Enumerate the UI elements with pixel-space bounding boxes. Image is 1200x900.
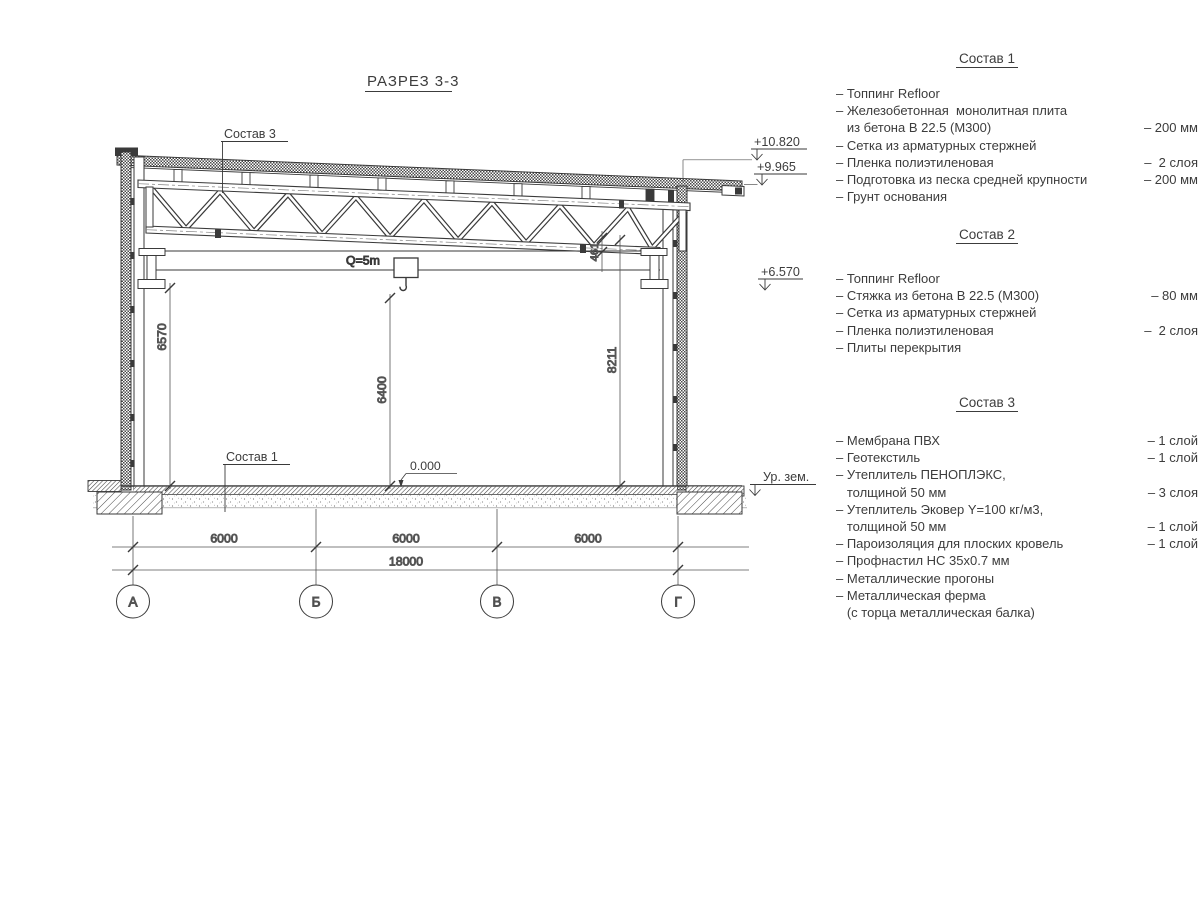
axis-label-g: Г [674, 595, 682, 610]
left-wall [121, 152, 144, 490]
zero-level-mark: 0.000 [399, 459, 458, 488]
elevation-roof-low: +9.965 [757, 160, 796, 174]
material-line: – Стяжка из бетона В 22.5 (М300)– 80 мм [836, 287, 1198, 304]
bottom-dimensions: 6000 6000 6000 18000 А Б В Г [112, 509, 749, 618]
axis-label-a: А [128, 595, 137, 610]
dim-chord-offset: 461 [589, 243, 601, 262]
elevation-crane-rail: +6.570 [761, 265, 800, 279]
material-line: толщиной 50 мм– 1 слой [836, 518, 1198, 535]
material-line: – Железобетонная монолитная плита [836, 102, 1198, 119]
dim-left-height: 6570 [155, 323, 169, 351]
span-dim-1: 6000 [210, 532, 238, 546]
dim-hook-height: 6400 [375, 376, 389, 404]
material-line: – Металлические прогоны [836, 570, 1198, 587]
crane-hook [400, 278, 406, 291]
elevation-roof-high: +10.820 [754, 135, 800, 149]
material-line: – Топпинг Refloor [836, 85, 1198, 102]
elevation-ground: Ур. зем. [763, 470, 809, 484]
dim-right-height: 8211 [605, 347, 619, 374]
crane-capacity-label: Q=5m [346, 254, 380, 268]
material-line: – Топпинг Refloor [836, 270, 1198, 287]
section-drawing: РАЗРЕЗ 3-3 [0, 0, 820, 660]
material-line: – Пленка полиэтиленовая– 2 слоя [836, 322, 1198, 339]
span-dim-2: 6000 [392, 532, 420, 546]
composition-3-block: Состав 3 – Мембрана ПВХ– 1 слой – Геотек… [836, 394, 1198, 621]
composition-2-heading: Состав 2 [836, 226, 1138, 242]
material-line: – Утеплитель ПЕНОПЛЭКС, [836, 466, 1198, 483]
composition-1-heading: Состав 1 [836, 50, 1138, 66]
material-line: – Утеплитель Эковер Y=100 кг/м3, [836, 501, 1198, 518]
material-line: из бетона В 22.5 (М300)– 200 мм [836, 119, 1198, 136]
right-column [663, 204, 673, 490]
material-line: – Сетка из арматурных стержней [836, 137, 1198, 154]
material-line: – Пароизоляция для плоских кровель– 1 сл… [836, 535, 1198, 552]
material-line: – Пленка полиэтиленовая– 2 слоя [836, 154, 1198, 171]
material-line: толщиной 50 мм– 3 слоя [836, 484, 1198, 501]
composition-2-block: Состав 2 – Топпинг Refloor – Стяжка из б… [836, 226, 1198, 356]
material-line: – Профнастил НС 35х0.7 мм [836, 552, 1198, 569]
composition-1-block: Состав 1 – Топпинг Refloor – Железобетон… [836, 50, 1198, 205]
drawing-title: РАЗРЕЗ 3-3 [365, 73, 460, 92]
composition-3-heading: Состав 3 [836, 394, 1138, 410]
floor-slab [93, 486, 747, 508]
zero-level-text: 0.000 [410, 459, 441, 473]
floor-composition-callout: Состав 1 [226, 450, 278, 464]
sand-base-layer [93, 495, 746, 508]
hoist-trolley [394, 258, 418, 278]
material-line: – Металлическая ферма [836, 587, 1198, 604]
section-title-text: РАЗРЕЗ 3-3 [367, 73, 460, 90]
material-line: – Грунт основания [836, 188, 1198, 205]
material-line: – Подготовка из песка средней крупности–… [836, 171, 1198, 188]
axis-label-b: Б [312, 595, 321, 610]
span-dim-3: 6000 [574, 532, 602, 546]
left-column [134, 157, 144, 490]
material-line: – Мембрана ПВХ– 1 слой [836, 432, 1198, 449]
drawing-sheet: РАЗРЕЗ 3-3 [0, 0, 1200, 900]
material-line: – Геотекстиль– 1 слой [836, 449, 1198, 466]
material-line: – Плиты перекрытия [836, 339, 1198, 356]
material-line: – Сетка из арматурных стержней [836, 304, 1198, 321]
total-dim: 18000 [389, 555, 423, 569]
roof-composition-callout: Состав 3 [224, 127, 276, 141]
material-line: (с торца металлическая балка) [836, 604, 1198, 621]
axis-label-v: В [492, 595, 501, 610]
